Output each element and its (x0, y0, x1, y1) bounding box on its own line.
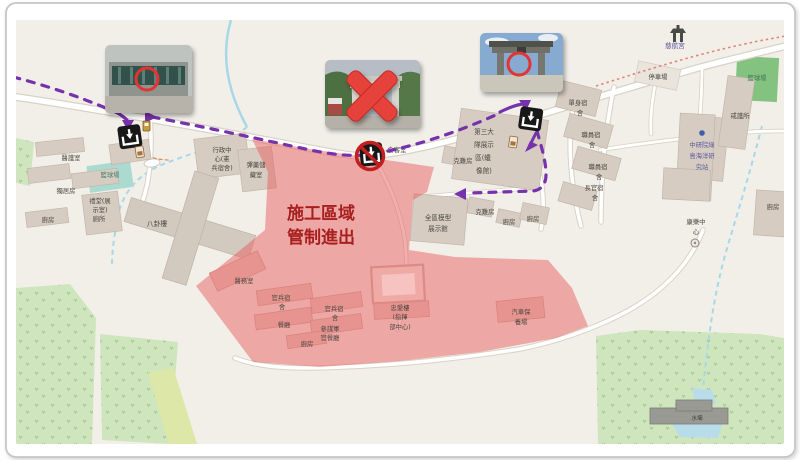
label-solitary-cells: 獨居房 (57, 186, 76, 195)
photo-ground (325, 116, 420, 128)
label-toilet: 廁所 (93, 214, 106, 223)
dam-tower (676, 400, 712, 411)
label-kenan-b: 克難房 (476, 207, 495, 216)
label-kitchen-d: 廚房 (527, 214, 540, 223)
label-wax-museum-4: 像館) (476, 166, 492, 175)
map-canvas: 醫護室籃球場獨居房禮堂(展示室)廁所廚房八卦樓行政中心(憲兵宿舍)彈藥儲藏室施工… (13, 20, 798, 455)
label-troop-dorm2-2: 舍 (332, 313, 339, 322)
label-troop-dorm1-2: 舍 (279, 302, 286, 311)
label-zhongai-3: 部中心) (389, 322, 410, 331)
label-infirmary: 醫務室 (235, 276, 254, 285)
label-ammo-1: 彈藥儲 (247, 160, 267, 169)
building (662, 168, 711, 201)
label-zhongai-2: (指揮 (392, 312, 408, 321)
dropoff-icon-closed (357, 142, 384, 169)
label-recreation-1: 康樂中 (687, 217, 706, 226)
label-kitchen-west: 廚房 (42, 215, 55, 224)
label-motorpool-1: 汽車保 (512, 307, 532, 316)
label-kenan-a: 克難房 (454, 156, 473, 165)
label-troop-dorm2-1: 官兵宿 (325, 304, 344, 313)
vending-machine-icon (143, 121, 150, 131)
label-admin-3: 兵宿舍) (211, 163, 232, 172)
photo-cloud (538, 34, 558, 42)
label-guard-station: 戒護所 (731, 111, 751, 120)
label-staff-dorm1-2: 舍 (589, 140, 596, 149)
label-staff-dorm2-1: 職員宿 (589, 162, 608, 171)
label-wax-museum-1: 第三大 (474, 127, 494, 136)
label-staff-canteen-1: 參謀軍 (321, 324, 340, 333)
label-kitchen-zone: 廚房 (301, 339, 314, 348)
label-kitchen-east: 廚房 (767, 202, 780, 211)
drink-vending-icon-2 (508, 136, 517, 148)
zhongai-building (371, 265, 425, 304)
label-motorpool-2: 養場 (515, 317, 528, 326)
label-officer-dorm-2: 舍 (592, 193, 599, 202)
photo-gate-roof (489, 41, 553, 47)
label-recreation-2: 心 (693, 228, 700, 236)
label-academia-2: 島海洋研 (689, 151, 715, 160)
label-auditorium-1: 禮堂(展 (89, 196, 111, 205)
construction-zone-map: 醫護室籃球場獨居房禮堂(展示室)廁所廚房八卦樓行政中心(憲兵宿舍)彈藥儲藏室施工… (0, 0, 800, 460)
label-basketball-west: 籃球場 (101, 170, 121, 179)
label-medical-room: 醫護室 (62, 153, 81, 162)
label-auditorium-2: 示室) (92, 205, 107, 214)
dropoff-icon-east (518, 106, 544, 132)
label-staff-dorm1-1: 職員宿 (582, 130, 601, 139)
photo-east-gate (480, 33, 563, 92)
label-troop-dorm1-1: 官兵宿 (272, 293, 291, 302)
label-cihang-temple: 慈航宮 (665, 41, 685, 50)
label-academia-3: 究站 (696, 162, 709, 171)
label-bagua-building: 八卦樓 (147, 219, 168, 228)
label-ammo-2: 藏室 (250, 170, 263, 179)
map-page: 醫護室籃球場獨居房禮堂(展示室)廁所廚房八卦樓行政中心(憲兵宿舍)彈藥儲藏室施工… (0, 0, 800, 460)
green-area (16, 284, 96, 444)
building-courtyard (381, 273, 415, 296)
label-officer-dorm-1: 長官宿 (585, 183, 604, 192)
label-parking: 停車場 (649, 72, 669, 81)
drink-vending-icon (135, 146, 144, 158)
label-wax-museum-3: 區(蠟 (475, 153, 491, 162)
recreation-center-icon (691, 239, 699, 247)
label-academia-1: 中研院綠 (689, 140, 715, 149)
notice-line-1: 施工區域 (287, 203, 355, 224)
label-model-hall-1: 全區模型 (425, 213, 452, 222)
label-model-hall-2: 展示館 (428, 224, 448, 233)
photo-ground (105, 96, 192, 113)
pond-lower (672, 424, 722, 438)
photo-west-building (105, 45, 192, 113)
label-admin-2: 心(憲 (214, 154, 230, 163)
label-wax-museum-2: 隊展示 (474, 140, 494, 149)
label-canteen: 餐廳 (278, 320, 291, 329)
dropoff-icon-west (117, 124, 143, 150)
label-zhongai-1: 忠愛樓 (391, 303, 411, 312)
label-single-dorm-1: 單身宿 (569, 98, 588, 107)
label-staff-dorm2-2: 舍 (596, 172, 603, 181)
label-dam: 水壩 (691, 414, 703, 422)
label-single-dorm-2: 舍 (577, 108, 584, 117)
photo-ground (480, 75, 563, 92)
label-admin-1: 行政中 (213, 145, 232, 154)
poi-dot-icon (699, 130, 705, 136)
notice-line-2: 管制進出 (287, 227, 355, 248)
label-basketball-east: 籃球場 (748, 73, 768, 82)
label-kitchen-c: 廚房 (503, 217, 516, 226)
label-staff-canteen-2: 官餐廳 (321, 333, 341, 342)
